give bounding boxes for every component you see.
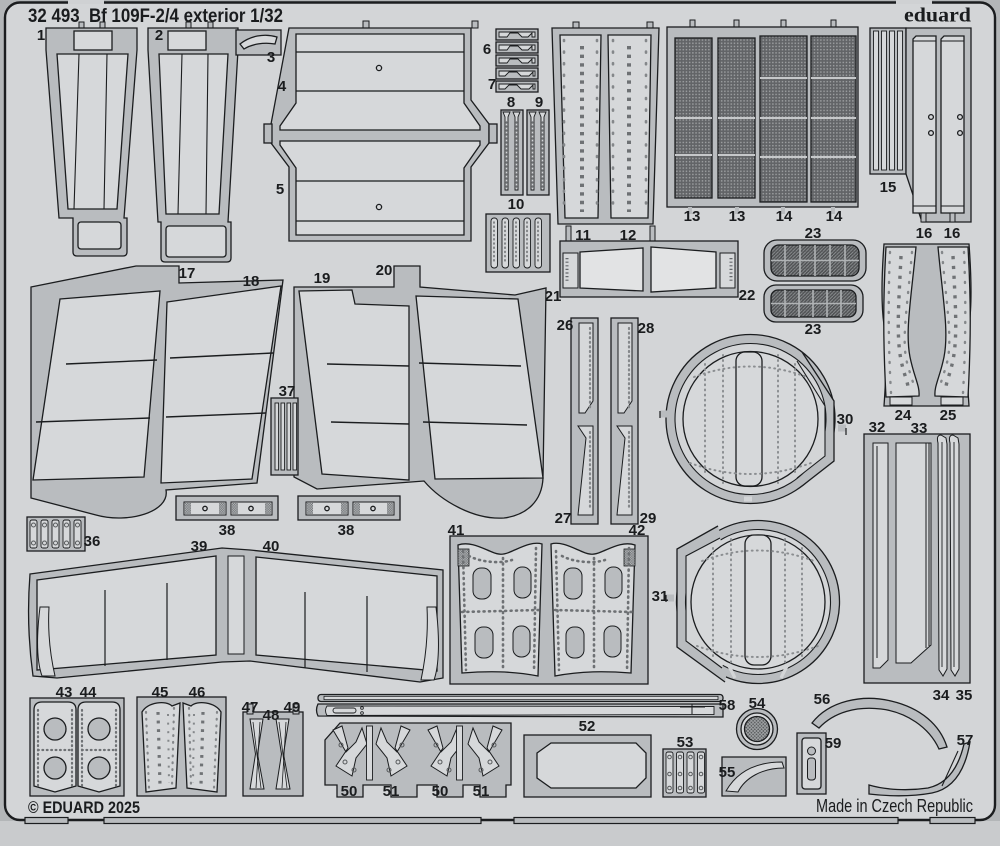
svg-text:50: 50 xyxy=(341,783,358,800)
svg-text:9: 9 xyxy=(535,94,543,111)
svg-text:51: 51 xyxy=(383,783,400,800)
svg-text:55: 55 xyxy=(719,764,736,781)
svg-text:14: 14 xyxy=(776,208,793,225)
svg-text:23: 23 xyxy=(805,321,822,338)
svg-text:eduard: eduard xyxy=(904,5,971,27)
svg-text:15: 15 xyxy=(880,179,897,196)
svg-text:42: 42 xyxy=(629,522,646,539)
svg-text:28: 28 xyxy=(638,320,655,337)
svg-text:45: 45 xyxy=(152,684,169,701)
svg-text:47: 47 xyxy=(242,699,259,716)
svg-text:32 493 Bf 109F-2/4 exterior 1: 32 493 Bf 109F-2/4 exterior 1/32 xyxy=(28,5,283,27)
svg-text:36: 36 xyxy=(84,533,101,550)
svg-text:21: 21 xyxy=(545,288,562,305)
svg-text:6: 6 xyxy=(483,41,491,58)
svg-text:34: 34 xyxy=(933,687,950,704)
svg-text:25: 25 xyxy=(940,407,957,424)
svg-text:16: 16 xyxy=(916,225,933,242)
svg-text:37: 37 xyxy=(279,383,296,400)
svg-text:39: 39 xyxy=(191,538,208,555)
svg-text:49: 49 xyxy=(284,699,301,716)
svg-text:40: 40 xyxy=(263,538,280,555)
svg-text:17: 17 xyxy=(179,265,196,282)
svg-text:4: 4 xyxy=(278,78,287,95)
svg-text:30: 30 xyxy=(837,411,854,428)
svg-text:© EDUARD 2025: © EDUARD 2025 xyxy=(28,799,140,817)
svg-text:18: 18 xyxy=(243,273,260,290)
svg-text:22: 22 xyxy=(739,287,756,304)
svg-text:27: 27 xyxy=(555,510,572,527)
svg-text:41: 41 xyxy=(448,522,465,539)
svg-text:44: 44 xyxy=(80,684,97,701)
svg-text:7: 7 xyxy=(488,76,496,93)
svg-text:33: 33 xyxy=(911,420,928,437)
svg-text:57: 57 xyxy=(957,732,974,749)
svg-text:38: 38 xyxy=(219,522,236,539)
svg-text:32: 32 xyxy=(869,419,886,436)
svg-text:58: 58 xyxy=(719,697,736,714)
svg-text:56: 56 xyxy=(814,691,831,708)
svg-text:Made in Czech Republic: Made in Czech Republic xyxy=(816,795,973,816)
svg-text:54: 54 xyxy=(749,695,766,712)
svg-text:13: 13 xyxy=(729,208,746,225)
svg-text:20: 20 xyxy=(376,262,393,279)
svg-text:26: 26 xyxy=(557,317,574,334)
svg-text:3: 3 xyxy=(267,49,275,66)
svg-text:24: 24 xyxy=(895,407,912,424)
svg-text:53: 53 xyxy=(677,734,694,751)
svg-text:52: 52 xyxy=(579,718,596,735)
svg-text:2: 2 xyxy=(155,27,163,44)
svg-text:8: 8 xyxy=(507,94,515,111)
svg-text:13: 13 xyxy=(684,208,701,225)
svg-text:51: 51 xyxy=(473,783,490,800)
svg-text:5: 5 xyxy=(276,181,284,198)
svg-text:31: 31 xyxy=(652,588,669,605)
svg-text:14: 14 xyxy=(826,208,843,225)
svg-text:59: 59 xyxy=(825,735,842,752)
svg-text:10: 10 xyxy=(508,196,525,213)
svg-text:50: 50 xyxy=(432,783,449,800)
svg-text:46: 46 xyxy=(189,684,206,701)
svg-text:43: 43 xyxy=(56,684,73,701)
svg-text:35: 35 xyxy=(956,687,973,704)
svg-text:16: 16 xyxy=(944,225,961,242)
svg-text:23: 23 xyxy=(805,225,822,242)
svg-text:38: 38 xyxy=(338,522,355,539)
svg-text:48: 48 xyxy=(263,707,280,724)
svg-text:1: 1 xyxy=(37,27,45,44)
svg-text:19: 19 xyxy=(314,270,331,287)
